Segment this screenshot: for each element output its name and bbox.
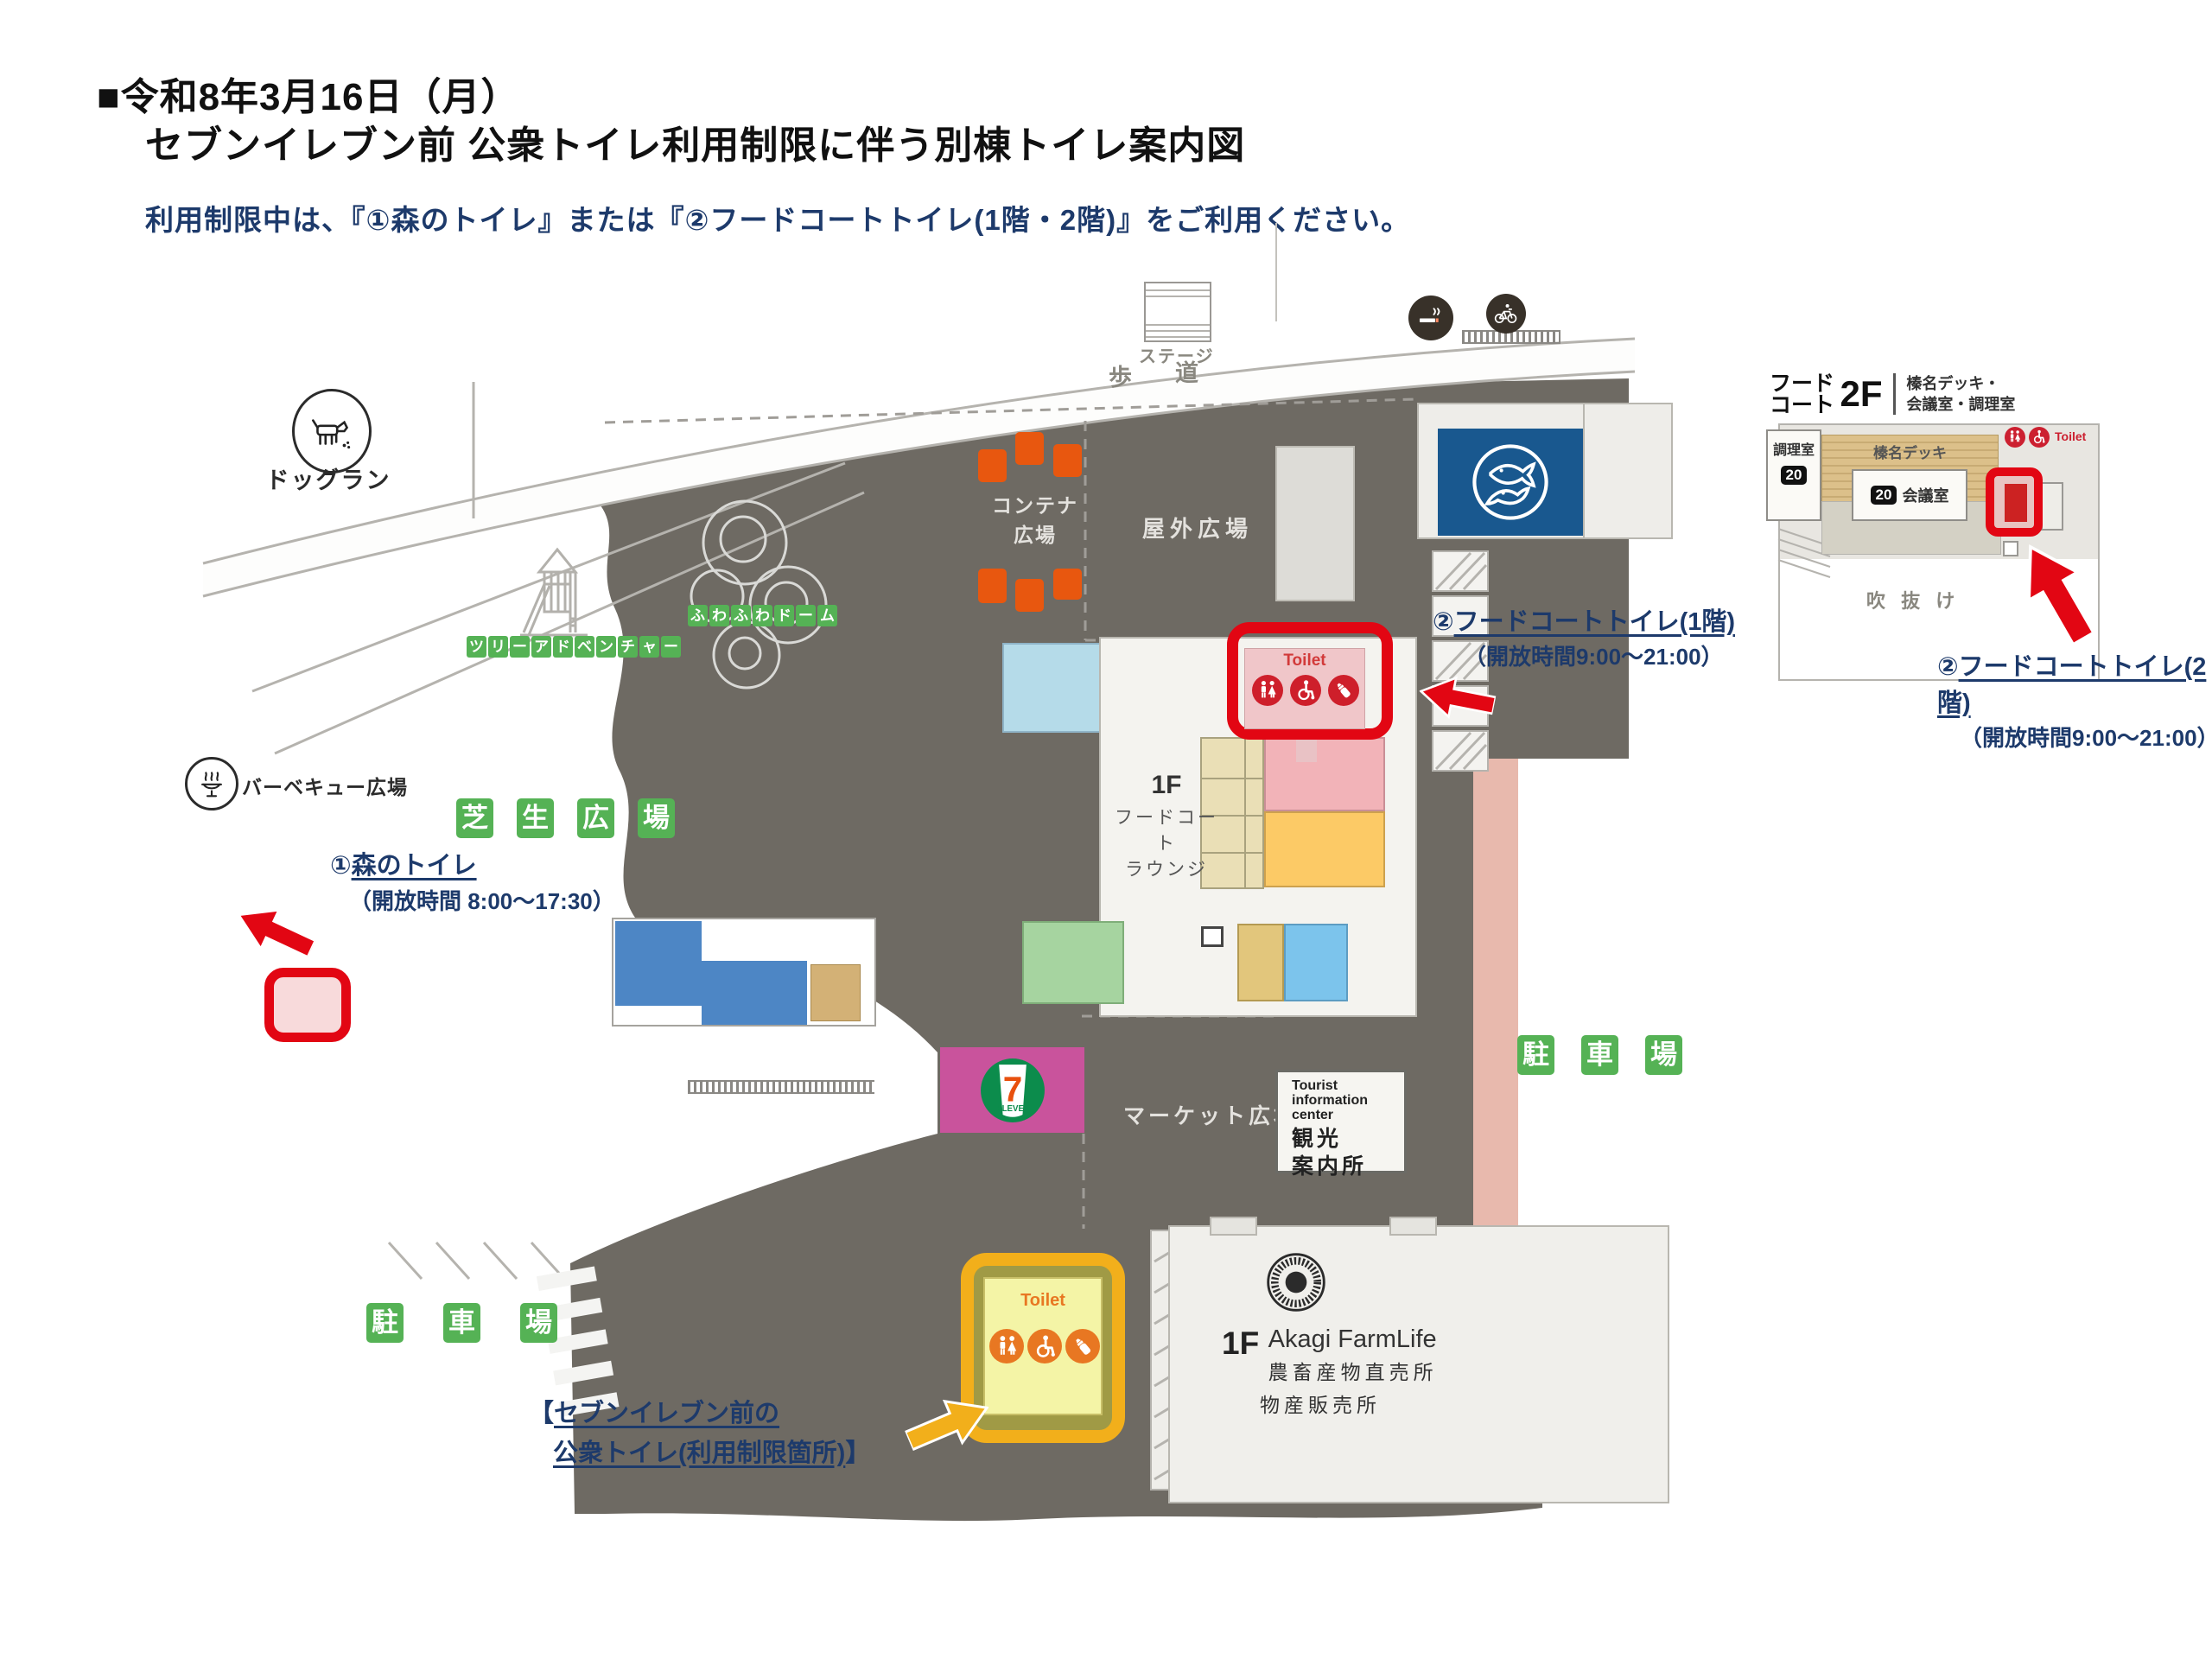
fuwafuwa-dome-label: ふわふわドーム (688, 605, 839, 626)
toilet-2f-highlight (1986, 467, 2043, 537)
akagi-label: 1F Akagi FarmLife 農畜産物直売所 物産販売所 (1222, 1325, 1438, 1418)
restricted-toilet-sign: Toilet (985, 1291, 1101, 1311)
forest-toilet-annotation: ①森のトイレ （開放時間 8:00～17:30） (330, 845, 615, 916)
baby-care-icon (1065, 1329, 1100, 1363)
dog-run-label: ドッグラン (233, 461, 423, 495)
fc-toilet-1f-annotation: ②フードコートトイレ(1階) （開放時間9:00～21:00） (1433, 601, 1735, 671)
tree-adventure-icon (518, 546, 596, 641)
toilet-guide-map-page: ■令和8年3月16日（月） セブンイレブン前 公衆トイレ利用制限に伴う別棟トイレ… (0, 0, 2212, 1659)
smoking-area-icon (1408, 296, 1453, 340)
akagi-entrance-1 (1210, 1217, 1257, 1236)
svg-text:7: 7 (1002, 1069, 1022, 1109)
wheelchair-icon (1027, 1329, 1062, 1363)
food-court-label: 1F フードコート ラウンジ (1115, 771, 1218, 881)
tree-adventure-label: ツリーアドベンチャー (467, 636, 683, 658)
container-plaza-label: コンテナ 広場 (983, 489, 1087, 548)
inset-meeting-room: 20 会議室 (1852, 469, 1967, 521)
inset-title: フード コート 2F 榛名デッキ・ 会議室・調理室 (1770, 373, 2015, 416)
inset-side-room (2041, 482, 2063, 531)
male-female-icon (1252, 675, 1283, 706)
male-female-icon (2005, 427, 2025, 448)
svg-text:ELEVEn: ELEVEn (996, 1103, 1029, 1113)
akagi-logo (1263, 1249, 1329, 1315)
fuwafuwa-dome-shape (683, 482, 838, 698)
male-female-icon (989, 1329, 1024, 1363)
baby-care-icon (1328, 675, 1359, 706)
bbq-plaza-label: バーベキュー広場 (242, 771, 408, 800)
lawn-plaza-label: 芝生広場 (456, 798, 698, 838)
toilet-1f-sign: Toilet (1245, 652, 1364, 671)
walkway-label-2: 道 (1175, 354, 1198, 388)
fish-shop-sign (1438, 429, 1583, 536)
stage-building (1144, 282, 1211, 342)
forest-toilet-box (264, 968, 351, 1042)
seven-eleven-logo: 7 ELEVEn (975, 1052, 1051, 1128)
bbq-icon (185, 757, 238, 810)
plaza-building (1275, 446, 1355, 601)
fish-logo (1465, 437, 1555, 527)
outdoor-plaza-label: 屋外広場 (1142, 512, 1253, 543)
inset-cooking-room: 調理室 20 (1766, 429, 1821, 521)
inset-toilet-sign: Toilet (2055, 429, 2086, 443)
parking-right-label: 駐車場 (1517, 1035, 1709, 1075)
walkway-label-1: 歩 (1109, 359, 1132, 392)
bicycle-icon (1486, 294, 1526, 334)
tourist-info-building: Tourist information center 観光 案内所 (1275, 1070, 1407, 1173)
restricted-annotation: 【セブンイレブン前の 公衆トイレ(利用制限箇所)】 (529, 1393, 870, 1469)
seven-eleven-sign: 7 ELEVEn (940, 1047, 1084, 1133)
akagi-entrance-2 (1389, 1217, 1437, 1236)
fc-toilet-2f-annotation: ②フードコートトイレ(2階) （開放時間9:00～21:00） (1937, 646, 2212, 753)
wheelchair-icon (2029, 427, 2050, 448)
market-plaza-label: マーケット広場 (1123, 1099, 1299, 1130)
parking-left-label: 駐車場 (366, 1303, 597, 1343)
wheelchair-icon (1290, 675, 1321, 706)
inset-atrium-label: 吹 抜 け (1866, 586, 1960, 613)
